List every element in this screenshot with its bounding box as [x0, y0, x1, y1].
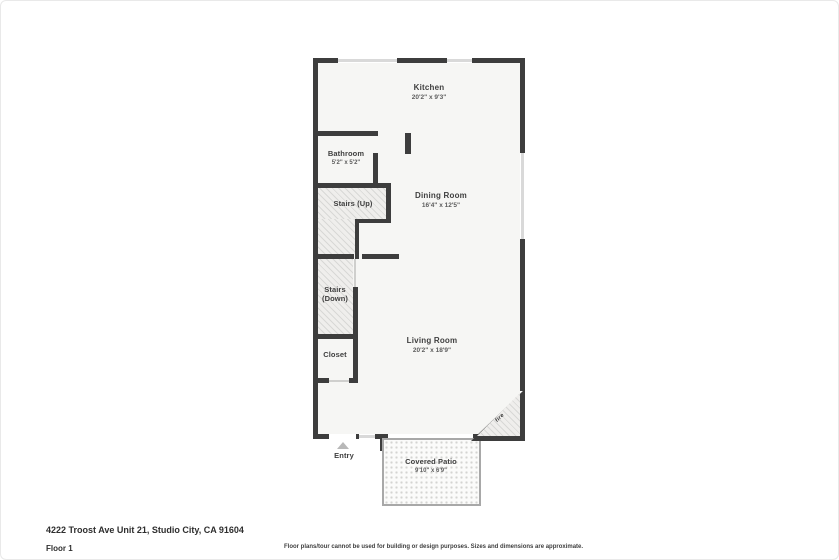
stairs-up-area [318, 219, 355, 254]
floor-label: Floor 1 [46, 544, 73, 553]
bathroom-dims: 5'2" x 5'2" [328, 160, 364, 166]
room-label-dining: Dining Room 16'4" x 12'5" [415, 191, 467, 209]
stairs-landing-wall [362, 254, 399, 259]
floorplan-page: fire Kitchen 20'2" x 9'3" Bathroom 5'2" … [0, 0, 839, 560]
living-name: Living Room [407, 336, 458, 345]
stairs-down-name-line1: Stairs [322, 285, 348, 294]
closet-bottom-wall [349, 378, 358, 383]
entry-arrow-icon [337, 442, 349, 449]
window-segment [521, 153, 524, 239]
patio-name: Covered Patio [405, 457, 457, 466]
room-label-patio: Covered Patio 9'10" x 6'9" [405, 457, 457, 474]
dining-name: Dining Room [415, 191, 467, 200]
window-segment [338, 59, 397, 62]
closet-door [329, 380, 351, 382]
stairs-mid-wall [355, 219, 359, 259]
patio-dims: 9'10" x 6'9" [405, 468, 457, 474]
closet-name: Closet [323, 350, 347, 359]
stairs-up-right-wall [386, 183, 391, 223]
closet-bottom-wall [313, 378, 329, 383]
room-label-kitchen: Kitchen 20'2" x 9'3" [412, 83, 447, 101]
room-label-living: Living Room 20'2" x 18'9" [407, 336, 458, 354]
room-label-closet: Closet [323, 350, 347, 359]
property-address: 4222 Troost Ave Unit 21, Studio City, CA… [46, 525, 244, 535]
kitchen-dims: 20'2" x 9'3" [412, 94, 447, 101]
stairs-down-bottom-wall [313, 334, 358, 339]
dining-dims: 16'4" x 12'5" [415, 202, 467, 209]
window-segment [447, 59, 472, 62]
bathroom-top-wall [313, 131, 378, 136]
wall-segment [520, 58, 525, 153]
stairs-open-edge [354, 259, 356, 287]
wall-segment [313, 434, 329, 439]
disclaimer-text: Floor plans/tour cannot be used for buil… [284, 544, 583, 550]
bathroom-name: Bathroom [328, 149, 364, 158]
room-label-stairs-up: Stairs (Up) [333, 199, 372, 208]
stairs-down-name-line2: (Down) [322, 294, 348, 303]
living-dims: 20'2" x 18'9" [407, 347, 458, 354]
stairs-up-name: Stairs (Up) [333, 199, 372, 208]
room-label-bathroom: Bathroom 5'2" x 5'2" [328, 149, 364, 166]
wall-segment [520, 239, 525, 391]
stairs-step-wall [358, 219, 391, 223]
entry-name: Entry [334, 451, 354, 460]
kitchen-name: Kitchen [412, 83, 447, 92]
room-label-entry: Entry [334, 451, 354, 460]
room-label-stairs-down: Stairs (Down) [322, 285, 348, 303]
window-segment [359, 435, 375, 438]
wall-segment [472, 58, 525, 63]
kitchen-divider-wall [405, 133, 411, 154]
wall-segment [397, 58, 447, 63]
